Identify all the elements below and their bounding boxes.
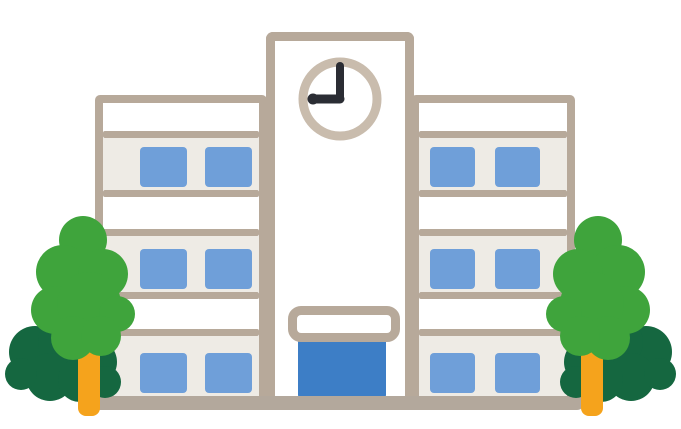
wing-floor bbox=[419, 138, 567, 190]
window bbox=[205, 147, 252, 187]
tree-right-graphic bbox=[536, 212, 676, 422]
window bbox=[430, 353, 475, 393]
window bbox=[495, 249, 540, 289]
tree-left-graphic bbox=[5, 212, 145, 422]
entrance-canopy bbox=[288, 306, 400, 342]
floor-divider bbox=[103, 190, 259, 197]
ground-line bbox=[88, 396, 584, 410]
wall-band bbox=[419, 103, 567, 131]
window bbox=[140, 147, 187, 187]
entrance-door bbox=[298, 338, 386, 398]
window bbox=[205, 249, 252, 289]
wing-floor bbox=[103, 138, 259, 190]
window bbox=[205, 353, 252, 393]
window bbox=[140, 249, 187, 289]
tree-left bbox=[5, 212, 145, 422]
window bbox=[495, 147, 540, 187]
floor-divider bbox=[419, 131, 567, 138]
scene bbox=[0, 0, 681, 429]
floor-divider bbox=[419, 190, 567, 197]
floor-divider bbox=[103, 131, 259, 138]
window bbox=[430, 249, 475, 289]
window bbox=[495, 353, 540, 393]
window bbox=[140, 353, 187, 393]
wall-band bbox=[103, 103, 259, 131]
tree-right bbox=[536, 212, 676, 422]
window bbox=[430, 147, 475, 187]
clock bbox=[275, 41, 405, 161]
clock-hour-hand-tip bbox=[308, 94, 319, 105]
